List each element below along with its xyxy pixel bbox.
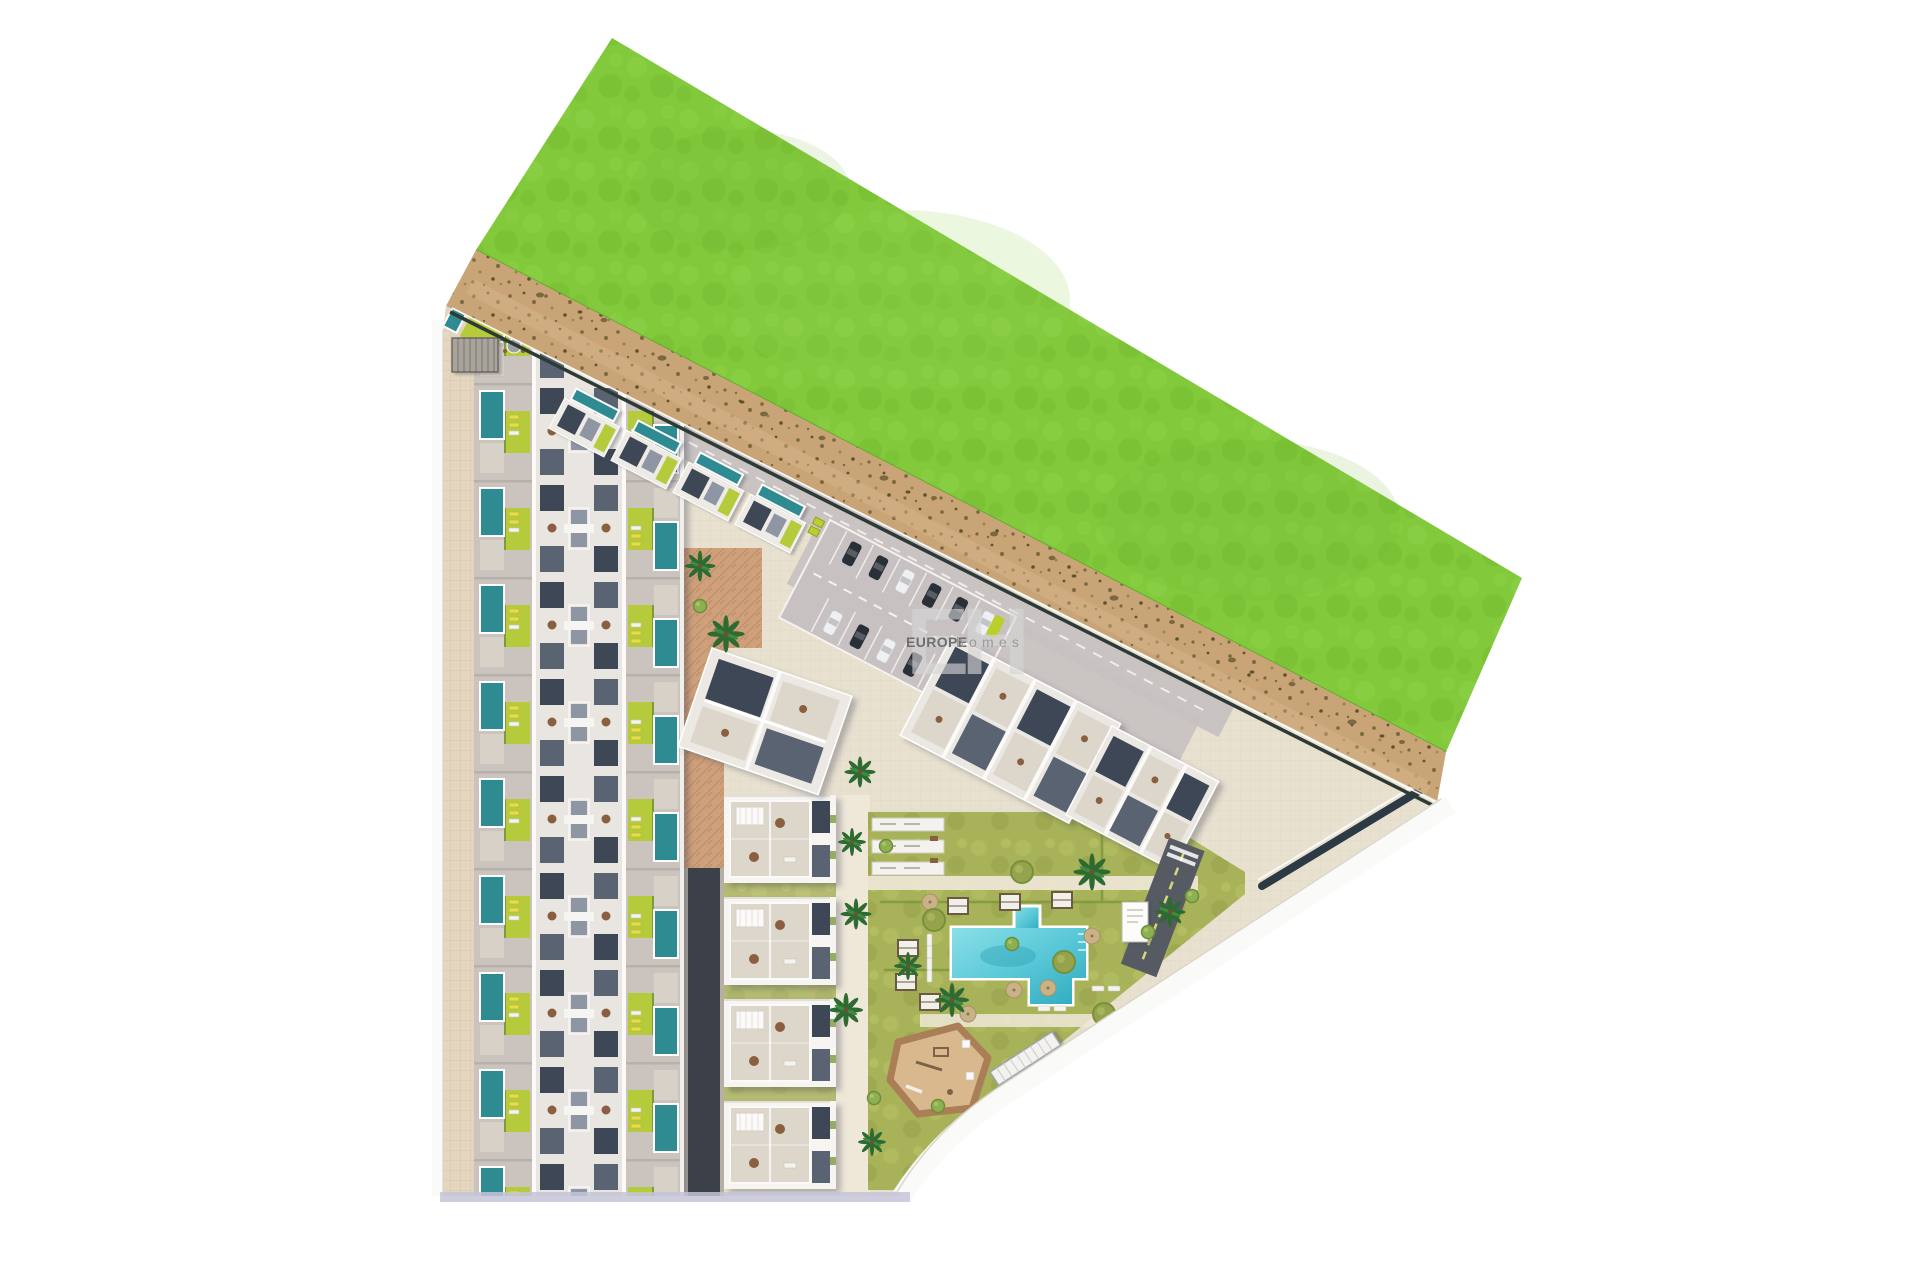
cabana: [920, 994, 940, 1010]
sidewalk-tiles: [443, 306, 474, 1196]
townhouse-row: [474, 1062, 684, 1159]
palm-tree: [935, 983, 969, 1017]
palm-tree: [829, 993, 863, 1027]
bottom-shadow: [440, 1192, 910, 1202]
bush: [1186, 890, 1199, 903]
palm-tree: [894, 952, 922, 980]
apartment-block: [724, 999, 836, 1087]
cabana: [948, 898, 968, 914]
townhouse-row: [474, 965, 684, 1062]
townhouse-row: [474, 480, 684, 577]
palm-tree: [685, 551, 716, 582]
cabana: [1052, 892, 1072, 908]
apartment-block: [724, 1101, 836, 1189]
palm-tree: [841, 899, 872, 930]
bush: [1006, 938, 1019, 951]
palm-tree: [1073, 853, 1110, 890]
bush: [932, 1100, 945, 1113]
umbrella: [1040, 980, 1056, 996]
townhouse-row: [474, 577, 684, 674]
garden-tree: [1011, 861, 1033, 883]
cabana: [1000, 894, 1020, 910]
townhouse-row: [474, 868, 684, 965]
garden-path-upper: [868, 876, 1198, 890]
bush: [694, 600, 707, 613]
watermark: EH EUROPE homes: [906, 589, 1024, 695]
garden-tree: [1053, 951, 1075, 973]
umbrella: [1006, 982, 1022, 998]
apartment-strip: [724, 795, 836, 1189]
palm-tree: [1155, 897, 1186, 928]
watermark-brand-suffix: homes: [956, 634, 1024, 650]
apartment-block: [724, 897, 836, 985]
site-plan-rendering: EH EUROPE homes: [0, 0, 1920, 1280]
umbrella: [1084, 928, 1100, 944]
palm-tree: [707, 615, 744, 652]
apartment-block: [724, 795, 836, 883]
bush: [868, 1092, 881, 1105]
bush: [1142, 926, 1155, 939]
townhouse-row: [474, 771, 684, 868]
garden-tree: [923, 909, 945, 931]
cabana: [896, 974, 916, 990]
central-road: [688, 868, 720, 1196]
palm-tree: [858, 1128, 886, 1156]
site-plan-canvas: EH EUROPE homes: [0, 0, 1920, 1280]
umbrella: [922, 894, 938, 910]
pergola: [452, 338, 498, 372]
palm-tree: [838, 828, 866, 856]
townhouse-row: [474, 674, 684, 771]
palm-tree: [845, 757, 876, 788]
bush: [880, 840, 893, 853]
